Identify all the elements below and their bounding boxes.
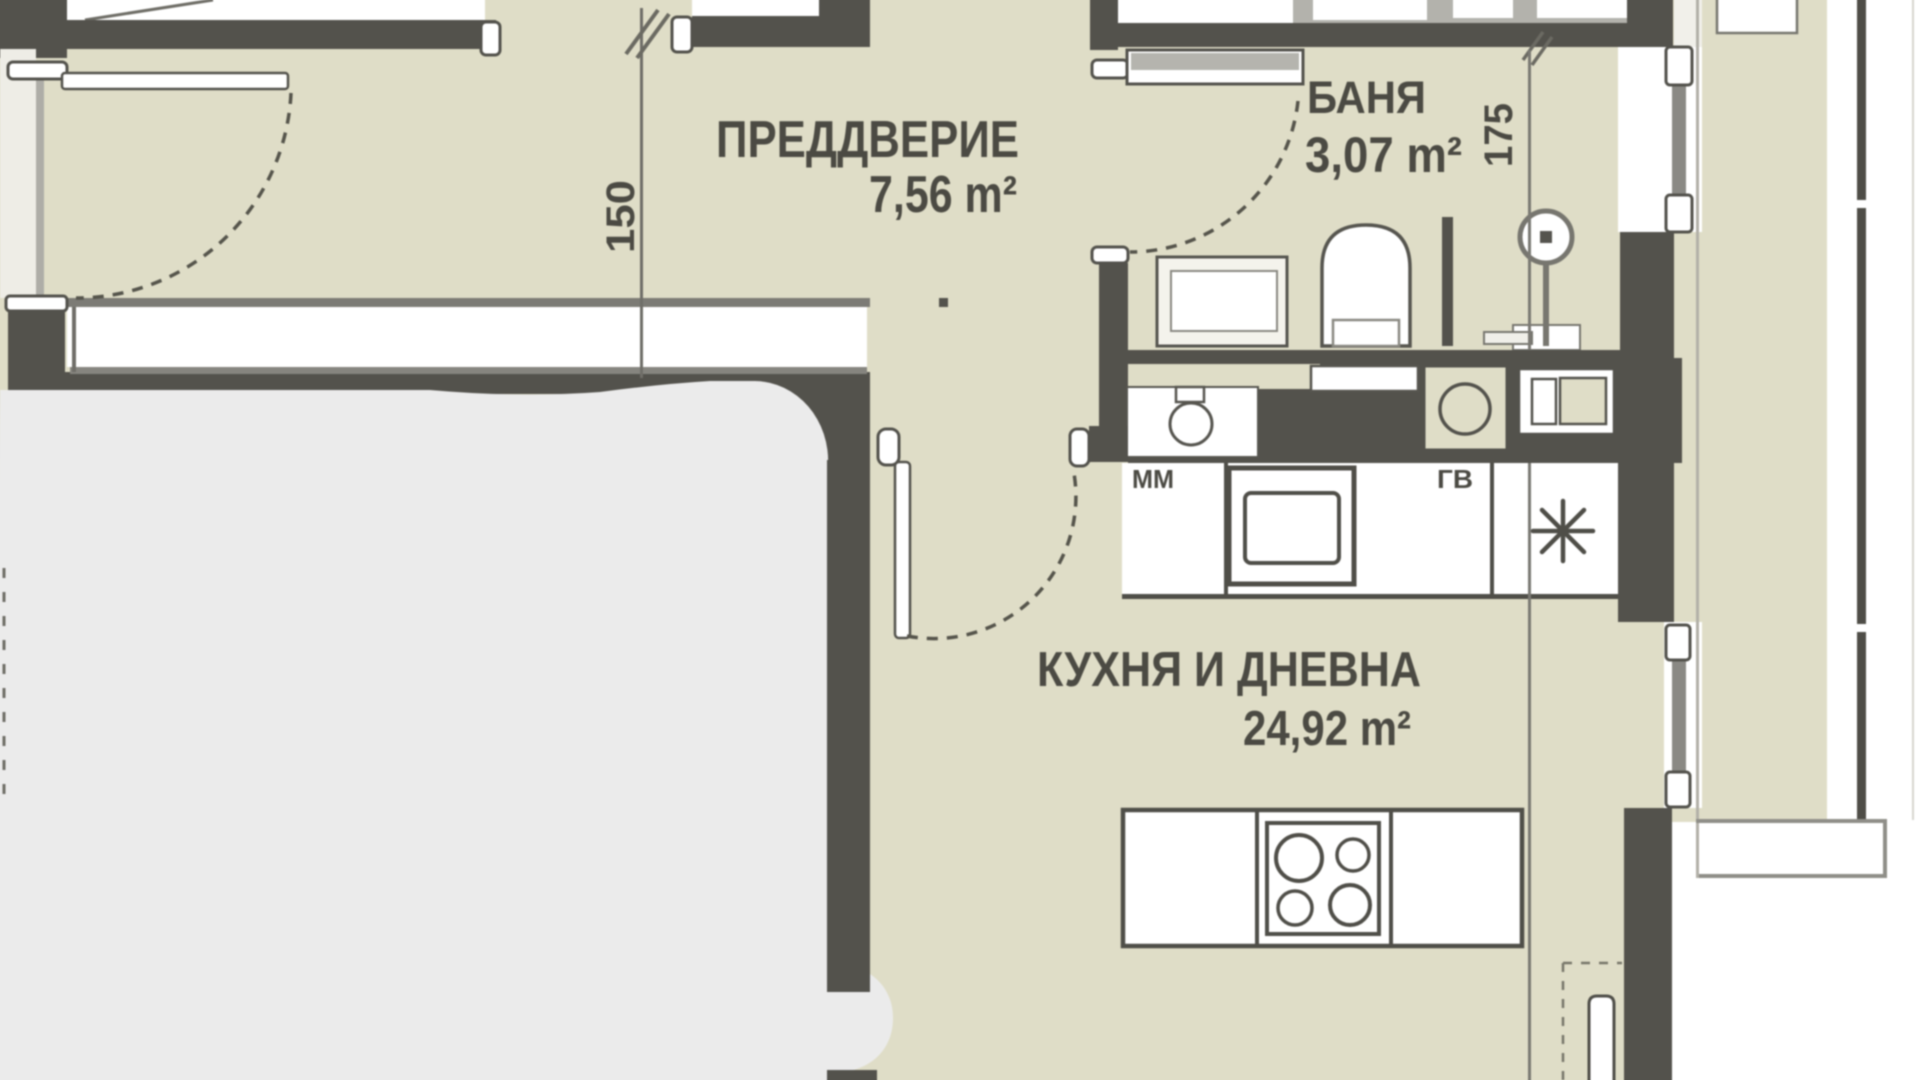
- svg-text:7,56 m²: 7,56 m²: [869, 166, 1017, 224]
- svg-text:ПРЕДДВЕРИЕ: ПРЕДДВЕРИЕ: [716, 111, 1019, 169]
- svg-text:175: 175: [1477, 103, 1521, 167]
- svg-text:ГВ: ГВ: [1437, 464, 1473, 494]
- svg-text:150: 150: [599, 180, 643, 253]
- svg-text:ММ: ММ: [1132, 464, 1174, 494]
- svg-text:КУХНЯ И ДНЕВНА: КУХНЯ И ДНЕВНА: [1037, 643, 1421, 697]
- svg-text:БАНЯ: БАНЯ: [1307, 72, 1426, 123]
- svg-text:24,92 m²: 24,92 m²: [1243, 702, 1411, 756]
- svg-text:3,07 m²: 3,07 m²: [1305, 127, 1462, 183]
